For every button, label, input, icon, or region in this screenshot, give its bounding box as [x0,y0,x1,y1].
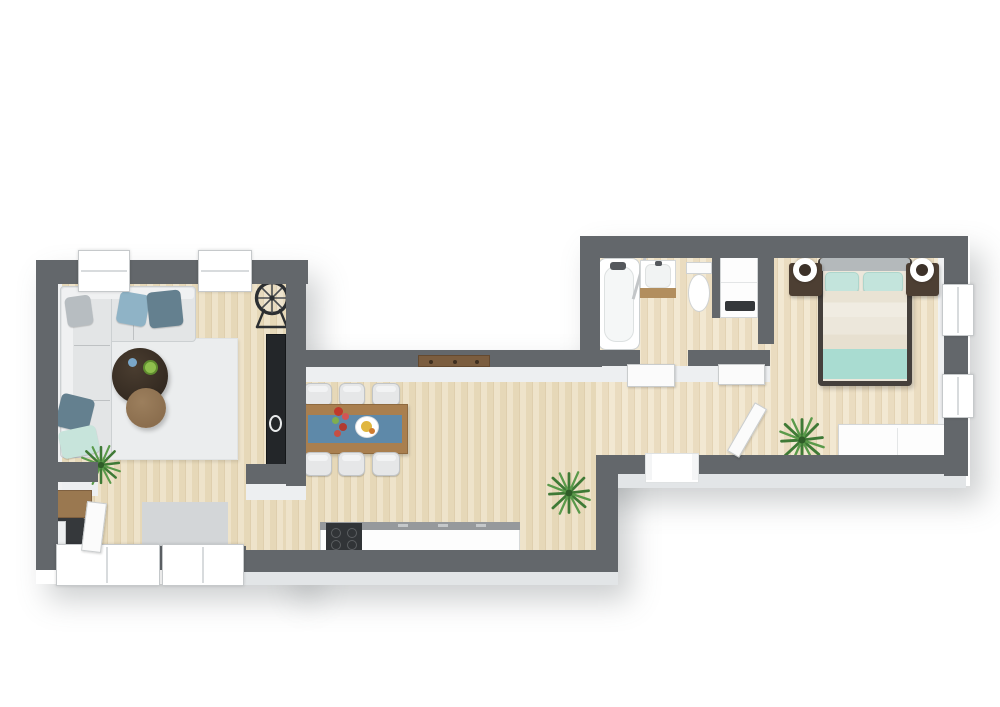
cooktop [326,523,362,552]
wall-face-bottom-mid [240,572,618,585]
bed [818,258,912,386]
window-living-bottom-1 [56,544,160,586]
burner-icon [331,528,341,538]
wall-hall-bottom-left [596,455,647,474]
dining-chair [304,383,332,406]
counter-handle [438,524,448,527]
washing-machine-door [725,301,755,311]
bed-pillow-mint [825,272,859,293]
window-bedroom-right-1 [942,284,974,336]
lamp-right-icon [910,258,934,282]
wall-face-corridor-top [288,366,600,382]
wall-living-top [36,260,308,284]
bed-duvet [823,291,907,349]
vanity-cabinet-front [640,288,676,298]
bathroom-door-leaf [627,364,675,387]
burner-icon [331,540,341,550]
window-living-bottom-2 [162,544,244,586]
wall-living-right [286,260,306,486]
tv-sideboard-decor [269,415,282,432]
dining-chair [338,452,365,476]
washer-closet [720,256,758,318]
wall-living-left [36,260,58,568]
dining-chair [372,383,400,406]
tv-sideboard [266,334,286,470]
coffee-table-bowl-green [143,360,158,375]
side-table [126,388,166,428]
table-flowers [330,405,354,439]
window-bedroom-right-2 [942,374,974,418]
counter-handle [398,524,408,527]
sink-faucet-icon [655,261,662,266]
dresser [838,424,956,458]
plant-corridor [546,468,592,518]
headboard [820,258,910,271]
wall-bath-bedroom-divider [758,236,774,344]
burner-icon [347,540,357,550]
dining-chair [304,452,332,476]
lamp-left-icon [793,258,817,282]
sofa-pillow-lightblue [115,291,150,328]
toilet-bowl [688,274,710,312]
counter-handle [476,524,486,527]
dining-chair [339,383,365,406]
bathroom-vanity [640,260,676,298]
wall-face-living-stub [246,484,306,500]
sofa-pillow-slate [146,289,184,328]
wall-living-right-stub [246,464,306,484]
bathtub [598,258,640,350]
sofa-pillow-gray [64,294,94,327]
wall-shelf [418,355,490,367]
tub-faucet-icon [610,262,626,270]
toilet-tank [686,262,712,274]
entry-opening-sill [645,453,699,483]
bed-blanket [823,349,907,379]
window-living-top-2 [198,250,252,292]
wall-bath-washer-divider [712,256,720,318]
dinner-plate [355,416,379,438]
closet-door-leaf [718,364,765,385]
wall-kitchen-bottom [240,550,618,572]
bed-pillow-mint [863,272,903,293]
dining-chair [372,452,400,476]
wall-bedroom-right [944,236,968,476]
floor-plan-stage [0,0,1000,707]
wall-desk-nook-stub [36,462,98,482]
sofa-seam-2 [74,345,110,346]
sink-basin [645,264,671,288]
toilet [686,262,712,312]
burner-icon [347,528,357,538]
coffee-table-dish-blue [128,358,137,367]
window-living-top-1 [78,250,130,292]
wall-right-block-top [580,236,968,258]
